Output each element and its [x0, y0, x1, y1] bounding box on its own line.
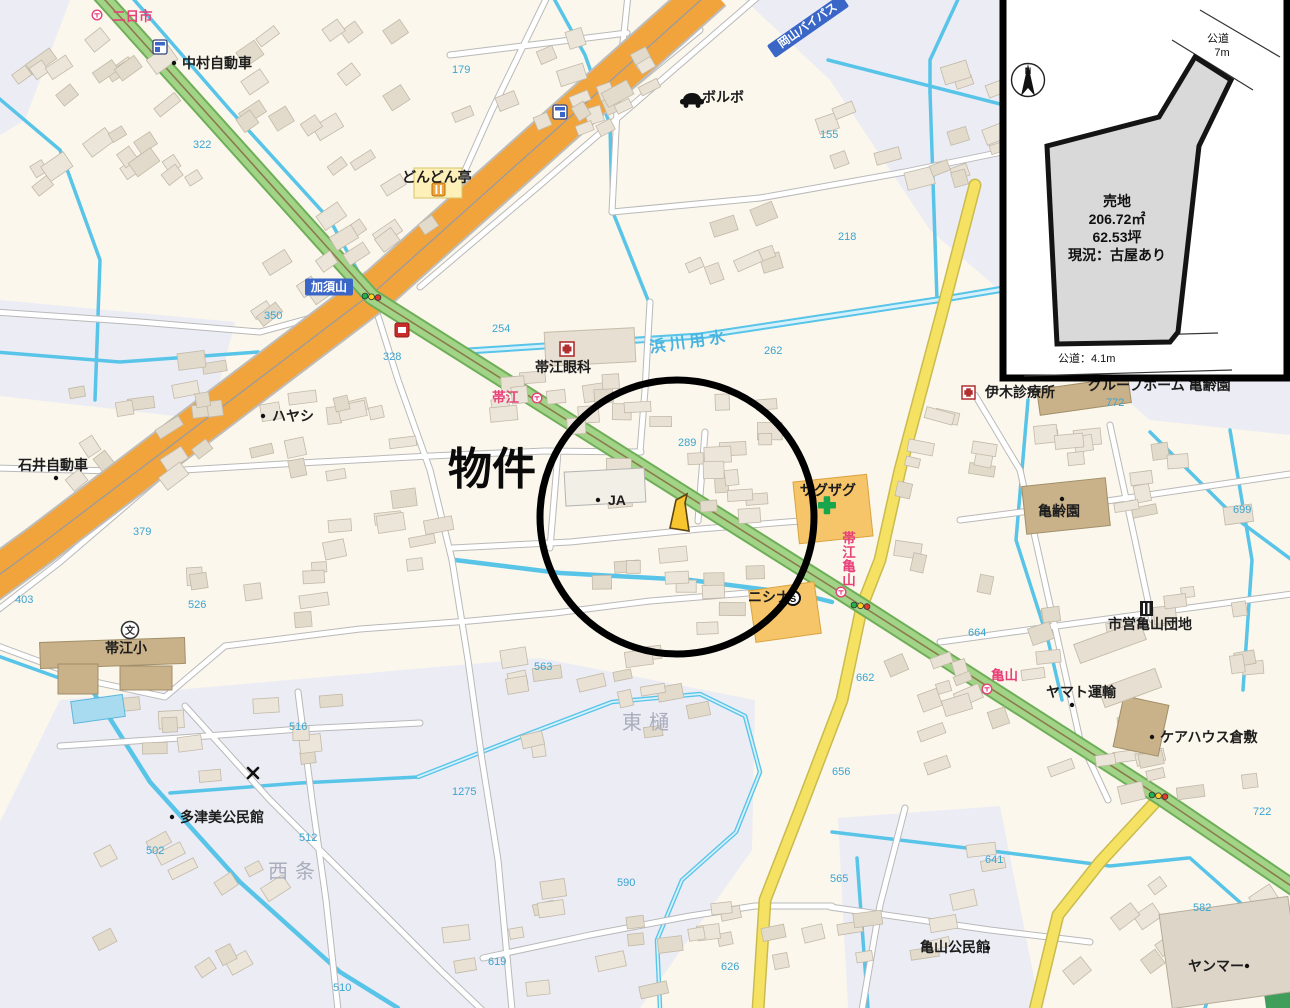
building: [715, 394, 730, 410]
building: [294, 611, 312, 628]
building: [1033, 424, 1058, 444]
inset-status: 現況：古屋あり: [1068, 247, 1166, 263]
building: [509, 927, 524, 939]
busstop-label: 帯江: [492, 389, 520, 405]
building: [626, 915, 645, 929]
building: [724, 469, 739, 486]
building: [1164, 594, 1187, 609]
poi-dot: [172, 61, 176, 65]
lot-number: 379: [133, 526, 151, 538]
building: [665, 571, 689, 584]
building: [626, 561, 640, 574]
lot-number: 565: [830, 873, 848, 885]
building: [1231, 601, 1247, 617]
lot-number: 664: [968, 627, 986, 639]
inset-road-top-width: 7m: [1214, 47, 1229, 59]
building: [1151, 442, 1169, 460]
building: [322, 539, 346, 560]
lot-number: 512: [299, 832, 317, 844]
lot-number: 510: [333, 982, 351, 994]
building: [284, 437, 306, 459]
inset-lot-diagram: N 売地 206.72㎡ 62.53坪 現況：古屋あり 公道 7m 公道：4.1…: [1003, 0, 1287, 378]
lot-number: 619: [488, 956, 506, 968]
lot-number: 289: [678, 437, 696, 449]
building: [540, 879, 567, 900]
bus-stop-icon: [92, 10, 102, 20]
lot-number: 662: [856, 672, 874, 684]
busstop-label: 亀山: [991, 667, 1018, 683]
poi-label: 亀齢園: [1038, 503, 1080, 519]
poi-label: ヤマト運輸: [1046, 684, 1117, 700]
building: [895, 481, 913, 499]
building: [69, 386, 86, 399]
building: [162, 717, 178, 733]
banner-label: 加須山: [310, 279, 347, 294]
area-name: 東樋: [622, 711, 676, 734]
building: [624, 401, 651, 413]
busstop-label: 二日市: [112, 8, 153, 24]
poi-label: 伊木診療所: [984, 384, 1055, 400]
ja-building: [564, 468, 646, 506]
building: [526, 980, 550, 996]
poi-label: ボルボ: [702, 89, 744, 105]
north-arrow-icon: N: [1012, 64, 1045, 97]
lot-number: 641: [985, 854, 1003, 866]
inset-land-label: 売地: [1103, 193, 1131, 209]
poi-label: ヤンマー: [1188, 958, 1244, 974]
building: [244, 583, 263, 601]
building: [746, 565, 765, 579]
inset-area-m2: 206.72㎡: [1089, 211, 1146, 227]
poi-label: ハヤシ: [272, 408, 314, 424]
school-icon: 文: [122, 622, 139, 639]
busstop-label-vertical: 亀: [842, 558, 856, 574]
building: [1167, 454, 1189, 469]
poi-label: 石井自動車: [17, 457, 88, 473]
poi-label: 帯江眼科: [535, 359, 591, 375]
building: [333, 395, 350, 412]
school-building-wing: [58, 664, 98, 694]
building: [727, 489, 753, 502]
poi-dot: [261, 414, 265, 418]
building: [537, 900, 565, 918]
building: [489, 405, 518, 422]
lot-number: 582: [1193, 902, 1211, 914]
lot-number: 626: [721, 961, 739, 973]
building: [546, 389, 566, 404]
lot-number: 502: [146, 845, 164, 857]
lot-number: 350: [264, 310, 282, 322]
hospital-icon: [962, 386, 975, 399]
road-name-banner: 加須山: [305, 279, 353, 296]
building: [602, 374, 619, 390]
building: [328, 519, 352, 533]
convenience-store-blue-icon: [153, 40, 167, 54]
poi-label: 中村自動車: [182, 55, 252, 71]
lot-number: 516: [289, 721, 307, 733]
building: [500, 647, 528, 669]
lot-number: 1275: [452, 786, 476, 798]
building: [1095, 753, 1116, 766]
poi-label: 市営亀山団地: [1108, 616, 1192, 632]
lot-number: 403: [15, 594, 33, 606]
building: [977, 574, 994, 594]
bus-stop-icon: [836, 587, 846, 597]
building: [697, 622, 719, 635]
building: [1130, 470, 1153, 485]
building: [1042, 606, 1061, 623]
building: [142, 742, 167, 754]
lot-number: 179: [452, 64, 470, 76]
building: [442, 925, 470, 943]
poi-dot: [1060, 497, 1064, 501]
lot-number: 155: [820, 129, 838, 141]
building: [719, 602, 745, 615]
building: [711, 902, 733, 915]
building: [1229, 654, 1245, 674]
building: [702, 584, 725, 599]
lot-number: 772: [1106, 397, 1124, 409]
building: [1036, 649, 1062, 664]
school-building-wing2: [120, 666, 172, 690]
lot-number: 699: [1233, 504, 1251, 516]
building: [1241, 773, 1258, 789]
building: [177, 735, 203, 753]
building: [738, 508, 761, 524]
shop-blue-icon: [553, 105, 567, 119]
building: [368, 405, 384, 420]
convenience-store-red-icon: [395, 323, 409, 337]
building: [627, 933, 644, 946]
poi-dot: [1150, 735, 1154, 739]
building: [376, 512, 405, 533]
building: [759, 433, 772, 444]
building: [617, 689, 633, 707]
poi-label: JA: [608, 492, 626, 508]
inset-area-tsubo: 62.53坪: [1092, 229, 1141, 245]
building: [700, 500, 717, 512]
poi-dot: [1070, 703, 1074, 707]
lot-number: 590: [617, 877, 635, 889]
hospital-icon: [560, 342, 574, 356]
building: [303, 570, 325, 584]
bus-stop-icon: [532, 393, 542, 403]
inset-road-bottom-label: 公道：4.1m: [1058, 351, 1115, 365]
poi-dot: [986, 946, 990, 950]
lot-number: 262: [764, 345, 782, 357]
busstop-label-vertical: 帯: [842, 530, 856, 546]
poi-label: どんどん亭: [402, 169, 472, 185]
building: [189, 572, 208, 590]
busstop-label-vertical: 江: [842, 544, 856, 560]
lot-number: 722: [1253, 806, 1271, 818]
building: [391, 488, 418, 509]
building: [115, 400, 134, 416]
building: [199, 769, 222, 782]
building: [253, 698, 279, 714]
bus-stop-icon: [982, 684, 992, 694]
building: [505, 676, 528, 695]
building: [592, 575, 611, 589]
lot-number: 328: [383, 351, 401, 363]
building: [688, 927, 706, 942]
building: [288, 458, 307, 478]
area-name: 西条: [268, 860, 322, 883]
building: [659, 546, 688, 563]
lot-number: 322: [193, 139, 211, 151]
housing-complex-icon: [1140, 601, 1153, 616]
poi-label: 多津美公民館: [180, 809, 264, 825]
poi-label: 帯江小: [105, 640, 147, 656]
map-canvas: 文 S: [0, 0, 1290, 1008]
svg-text:文: 文: [125, 624, 136, 637]
poi-dot: [1245, 964, 1249, 968]
poi-label: 亀山公民館: [920, 939, 990, 955]
building: [177, 350, 206, 370]
property-label: 物件: [448, 445, 536, 494]
building: [657, 936, 683, 954]
building: [704, 573, 724, 586]
building: [195, 392, 211, 408]
building: [406, 558, 423, 571]
busstop-label-vertical: 山: [842, 573, 856, 588]
building: [650, 417, 672, 427]
building: [772, 952, 789, 969]
lot-number: 254: [492, 323, 510, 335]
poi-label: ケアハウス倉敷: [1160, 729, 1258, 745]
building: [704, 446, 732, 463]
inset-road-top-label: 公道: [1207, 31, 1229, 45]
lot-number: 563: [534, 661, 552, 673]
map-screenshot: 文 S: [0, 0, 1290, 1008]
building: [688, 453, 704, 465]
building: [319, 694, 343, 708]
poi-dot: [170, 815, 174, 819]
lot-number: 526: [188, 599, 206, 611]
building: [703, 461, 724, 479]
poi-dot: [596, 498, 600, 502]
lot-number: 218: [838, 231, 856, 243]
building: [1054, 433, 1084, 449]
building: [1067, 451, 1084, 465]
yanmar-building: [1159, 896, 1290, 1008]
poi-dot: [54, 476, 58, 480]
building: [856, 950, 874, 963]
lot-number: 656: [832, 766, 850, 778]
